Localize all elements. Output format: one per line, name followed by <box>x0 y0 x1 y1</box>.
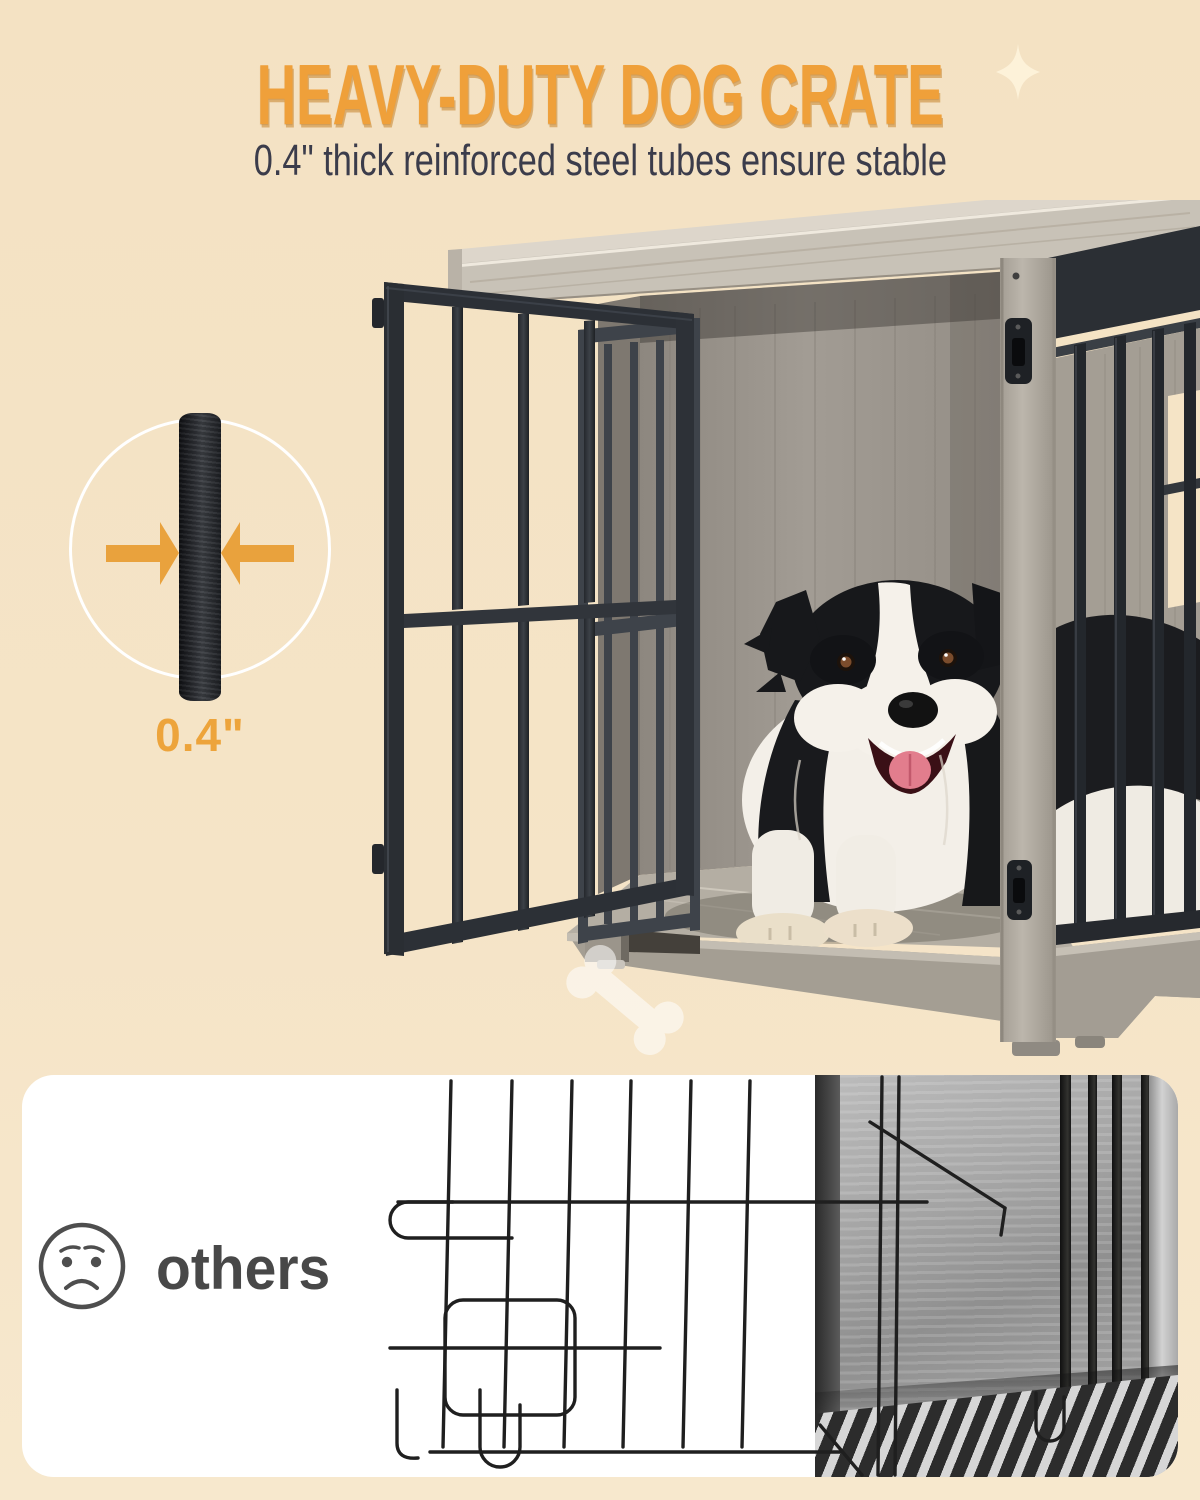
hero-crate-photo <box>0 200 1200 1080</box>
door-right-stile <box>676 312 694 896</box>
front-right-pillar <box>1000 258 1056 1042</box>
crate-foot <box>1075 1036 1105 1048</box>
dog-border-collie <box>736 580 1036 953</box>
subheader: 0.4" thick reinforced steel tubes ensure… <box>0 136 1200 186</box>
dog-nose <box>888 692 938 728</box>
four-point-sparkle-icon <box>996 44 1040 100</box>
page-title: HEAVY-DUTY DOG CRATE <box>256 47 943 144</box>
door-latch-bottom <box>1007 860 1032 920</box>
door-pin-bottom <box>372 844 384 874</box>
product-infographic: HEAVY-DUTY DOG CRATE 0.4" thick reinforc… <box>0 0 1200 1500</box>
competitor-wire-door <box>272 1075 1178 1477</box>
door-pin-top <box>372 298 384 328</box>
door-latch-top <box>1005 318 1032 384</box>
comparison-panel: others <box>22 1075 1178 1477</box>
crate-foot <box>1012 1040 1060 1056</box>
sad-face-icon <box>36 1217 128 1313</box>
page-subtitle: 0.4" thick reinforced steel tubes ensure… <box>253 136 946 186</box>
